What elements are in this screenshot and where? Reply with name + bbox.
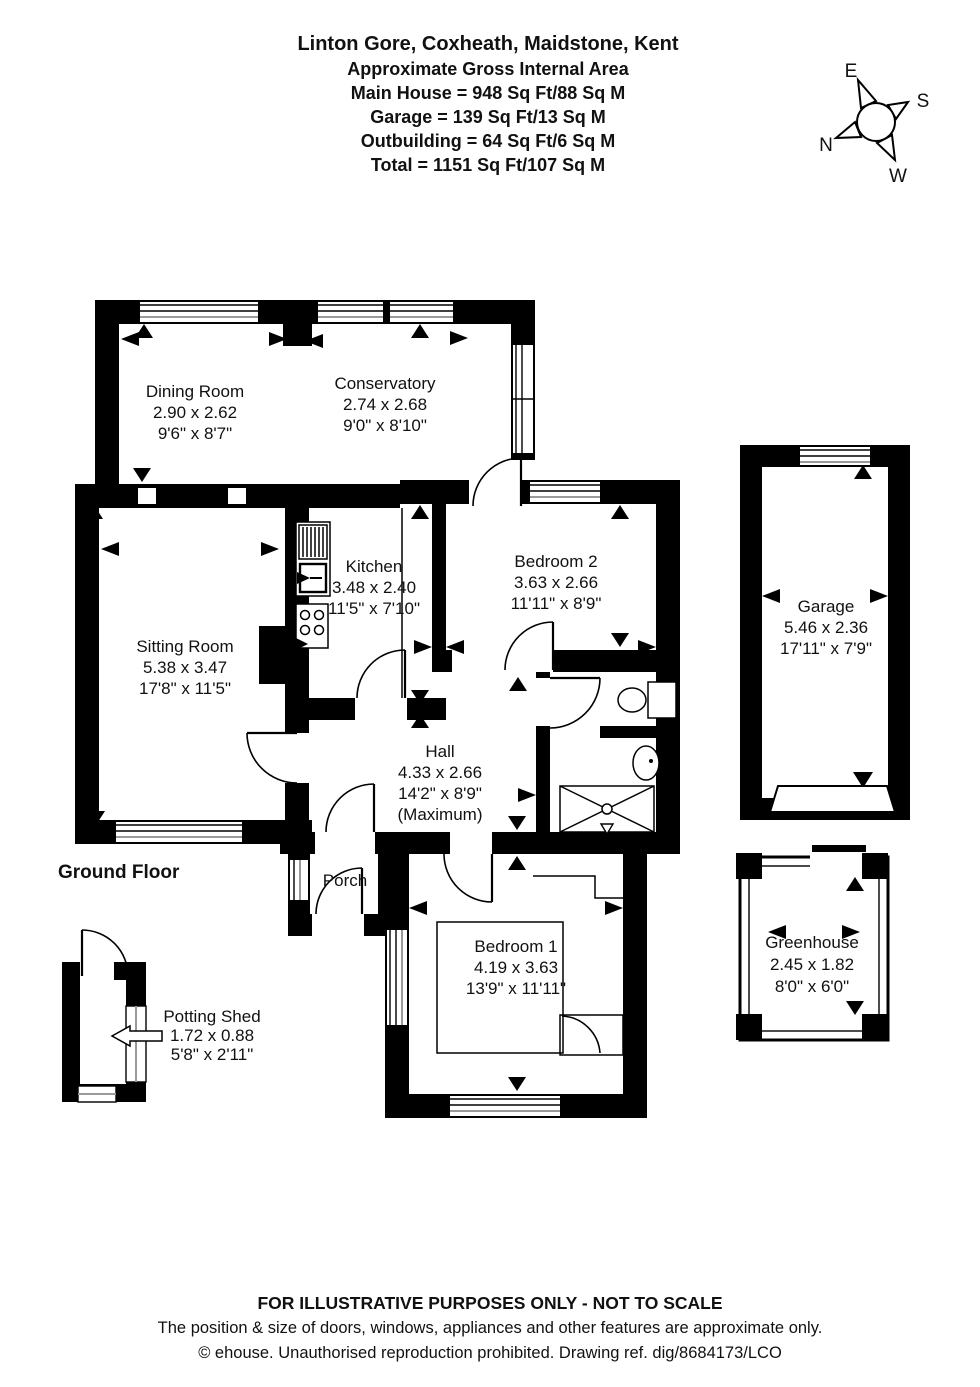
area-subtitle: Approximate Gross Internal Area xyxy=(347,59,629,79)
dining-room-metric: 2.90 x 2.62 xyxy=(153,403,237,422)
bedroom1-metric: 4.19 x 3.63 xyxy=(474,958,558,977)
hall-name: Hall xyxy=(425,742,454,761)
kitchen-label: Kitchen 3.48 x 2.40 11'5" x 7'10" xyxy=(328,557,420,618)
greenhouse-door-icon xyxy=(812,845,866,852)
bedroom2-label: Bedroom 2 3.63 x 2.66 11'11" x 8'9" xyxy=(511,552,602,613)
compass-s: S xyxy=(917,91,930,112)
compass-e: E xyxy=(845,61,858,82)
hall-label: Hall 4.33 x 2.66 14'2" x 8'9" (Maximum) xyxy=(398,742,483,824)
bedroom1-label: Bedroom 1 4.19 x 3.63 13'9" x 11'11" xyxy=(466,937,566,998)
compass-rose: E S N W xyxy=(819,61,929,187)
kitchen-door-icon xyxy=(357,650,405,698)
potting-shed-label: Potting Shed 1.72 x 0.88 5'8" x 2'11" xyxy=(163,1007,260,1064)
conservatory-imperial: 9'0" x 8'10" xyxy=(343,416,427,435)
compass-n: N xyxy=(819,135,833,156)
greenhouse-name: Greenhouse xyxy=(765,933,859,952)
kitchen-metric: 3.48 x 2.40 xyxy=(332,578,416,597)
toilet-icon xyxy=(618,682,676,718)
sitting-room-name: Sitting Room xyxy=(136,637,233,656)
hob-icon xyxy=(296,604,328,650)
sitting-room-metric: 5.38 x 3.47 xyxy=(143,658,227,677)
potting-shed-metric: 1.72 x 0.88 xyxy=(170,1026,254,1045)
bedroom2-name: Bedroom 2 xyxy=(514,552,597,571)
front-door-icon xyxy=(326,784,374,832)
cupboard-door-icon xyxy=(562,1016,600,1053)
area-garage: Garage = 139 Sq Ft/13 Sq M xyxy=(370,107,606,127)
garage-metric: 5.46 x 2.36 xyxy=(784,618,868,637)
conservatory-door-icon xyxy=(473,458,521,506)
porch-name: Porch xyxy=(323,871,367,890)
floorplan-page: Linton Gore, Coxheath, Maidstone, Kent A… xyxy=(0,0,980,1387)
footer-block: FOR ILLUSTRATIVE PURPOSES ONLY - NOT TO … xyxy=(158,1293,823,1362)
area-total: Total = 1151 Sq Ft/107 Sq M xyxy=(371,155,605,175)
sitting-room-door-icon xyxy=(247,733,297,783)
sitting-room-label: Sitting Room 5.38 x 3.47 17'8" x 11'5" xyxy=(136,637,233,698)
kitchen-name: Kitchen xyxy=(346,557,403,576)
sink-icon xyxy=(296,522,330,596)
bedroom1-wardrobe-line xyxy=(533,876,623,898)
compass-circle-icon xyxy=(857,103,895,141)
hall-imperial: 14'2" x 8'9" xyxy=(398,784,482,803)
conservatory-metric: 2.74 x 2.68 xyxy=(343,395,427,414)
potting-shed-name: Potting Shed xyxy=(163,1007,260,1026)
garage-label: Garage 5.46 x 2.36 17'11" x 7'9" xyxy=(780,597,872,658)
area-outbuilding: Outbuilding = 64 Sq Ft/6 Sq M xyxy=(361,131,616,151)
garage-door-icon xyxy=(770,786,895,812)
bedroom1-imperial: 13'9" x 11'11" xyxy=(466,979,566,998)
dining-room-name: Dining Room xyxy=(146,382,244,401)
potting-shed-structure xyxy=(62,930,162,1102)
bedroom2-metric: 3.63 x 2.66 xyxy=(514,573,598,592)
bedroom2-imperial: 11'11" x 8'9" xyxy=(511,594,602,613)
bedroom1-name: Bedroom 1 xyxy=(474,937,557,956)
bedroom2-door-icon xyxy=(505,622,553,670)
basin-icon xyxy=(633,746,659,780)
bathroom-door-icon xyxy=(550,678,600,728)
floorplan-drawing: Linton Gore, Coxheath, Maidstone, Kent A… xyxy=(0,0,980,1387)
footer-copyright: © ehouse. Unauthorised reproduction proh… xyxy=(198,1344,782,1362)
garage-imperial: 17'11" x 7'9" xyxy=(780,639,872,658)
greenhouse-metric: 2.45 x 1.82 xyxy=(770,955,854,974)
hall-note: (Maximum) xyxy=(398,805,483,824)
footer-approximate-note: The position & size of doors, windows, a… xyxy=(158,1319,823,1337)
bedroom1-door-icon xyxy=(444,854,492,902)
area-main-house: Main House = 948 Sq Ft/88 Sq M xyxy=(351,83,626,103)
conservatory-name: Conservatory xyxy=(334,374,436,393)
sitting-room-imperial: 17'8" x 11'5" xyxy=(139,679,231,698)
shower-icon xyxy=(560,786,654,834)
hall-metric: 4.33 x 2.66 xyxy=(398,763,482,782)
greenhouse-label: Greenhouse 2.45 x 1.82 8'0" x 6'0" xyxy=(765,933,859,996)
title-block: Linton Gore, Coxheath, Maidstone, Kent A… xyxy=(297,33,678,175)
garage-name: Garage xyxy=(798,597,855,616)
kitchen-imperial: 11'5" x 7'10" xyxy=(328,599,420,618)
ground-floor-label: Ground Floor xyxy=(58,862,180,883)
dining-room-label: Dining Room 2.90 x 2.62 9'6" x 8'7" xyxy=(146,382,244,443)
compass-w: W xyxy=(889,166,907,187)
address-title: Linton Gore, Coxheath, Maidstone, Kent xyxy=(297,33,678,55)
greenhouse-imperial: 8'0" x 6'0" xyxy=(775,977,849,996)
potting-shed-imperial: 5'8" x 2'11" xyxy=(171,1045,254,1064)
chimney-breast xyxy=(259,626,285,684)
conservatory-label: Conservatory 2.74 x 2.68 9'0" x 8'10" xyxy=(334,374,436,435)
bedroom1-cupboard xyxy=(560,1015,623,1055)
dining-room-imperial: 9'6" x 8'7" xyxy=(158,424,232,443)
footer-disclaimer: FOR ILLUSTRATIVE PURPOSES ONLY - NOT TO … xyxy=(257,1293,722,1313)
